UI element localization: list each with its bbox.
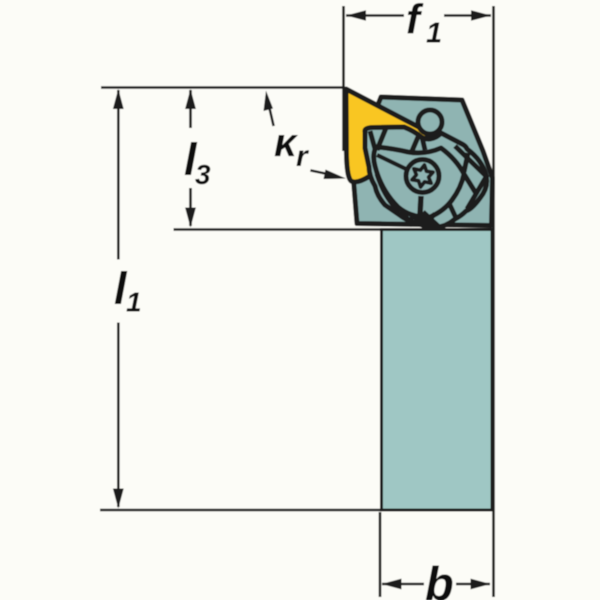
svg-text:3: 3: [195, 159, 211, 190]
svg-text:1: 1: [426, 18, 442, 50]
svg-text:1: 1: [126, 287, 142, 318]
svg-text:b: b: [425, 557, 454, 600]
